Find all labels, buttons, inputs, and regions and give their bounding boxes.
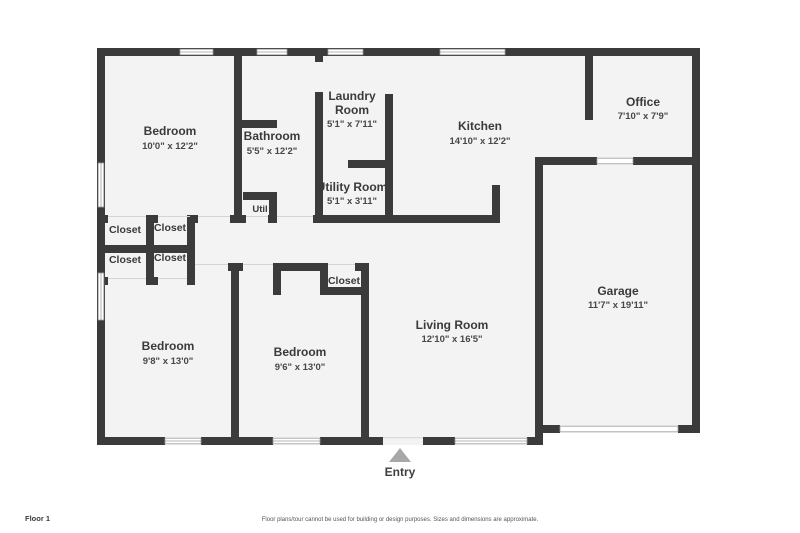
window (440, 49, 505, 55)
room-label-bedroom-1-dims: 10'0" x 12'2" (142, 141, 198, 152)
room-label-bedroom-3-dims: 9'6" x 13'0" (275, 362, 326, 373)
room-label-kitchen-name: Kitchen (458, 119, 502, 133)
window (455, 438, 527, 444)
window (257, 49, 287, 55)
room-label-office-name: Office (626, 95, 660, 109)
window (98, 163, 104, 207)
floor-number-label: Floor 1 (25, 514, 50, 523)
room-label-bedroom-2-dims: 9'8" x 13'0" (143, 356, 194, 367)
room-label-laundry-name-line2: Room (335, 103, 369, 117)
room-label-living-room-dims: 12'10" x 16'5" (421, 334, 482, 345)
entry-label: Entry (385, 465, 416, 479)
room-label-garage-dims: 11'7" x 19'11" (588, 300, 648, 311)
floor-plan-page: Bedroom 10'0" x 12'2" Bathroom 5'5" x 12… (0, 0, 800, 533)
room-label-bedroom-1-name: Bedroom (144, 124, 197, 138)
room-label-kitchen-dims: 14'10" x 12'2" (449, 136, 510, 147)
room-label-bathroom-dims: 5'5" x 12'2" (247, 146, 298, 157)
window (165, 438, 201, 444)
room-label-laundry-name-line1: Laundry (328, 89, 376, 103)
garage-door (560, 426, 678, 432)
room-label-office-dims: 7'10" x 7'9" (618, 111, 669, 122)
closet-label-5: Closet (328, 275, 361, 287)
room-label-bedroom-2-name: Bedroom (142, 339, 195, 353)
room-label-living-room-name: Living Room (416, 318, 489, 332)
window (98, 273, 104, 320)
room-label-bedroom-3-name: Bedroom (274, 345, 327, 359)
window (180, 49, 213, 55)
room-label-laundry-dims: 5'1" x 7'11" (327, 119, 377, 130)
closet-label-3: Closet (109, 254, 142, 266)
closet-label-1: Closet (109, 224, 142, 236)
closet-label-4: Closet (154, 252, 187, 264)
disclaimer-text: Floor plans/tour cannot be used for buil… (262, 517, 539, 523)
util-closet-label: Util (252, 204, 267, 215)
window (328, 49, 363, 55)
room-label-utility-name: Utility Room (317, 180, 388, 194)
room-label-bathroom-name: Bathroom (244, 129, 301, 143)
closet-label-2: Closet (154, 222, 187, 234)
room-label-utility-dims: 5'1" x 3'11" (327, 196, 377, 207)
floor-plan-canvas: Bedroom 10'0" x 12'2" Bathroom 5'5" x 12… (0, 0, 800, 533)
window (273, 438, 320, 444)
room-label-garage-name: Garage (597, 284, 639, 298)
office-garage-door (597, 158, 633, 164)
